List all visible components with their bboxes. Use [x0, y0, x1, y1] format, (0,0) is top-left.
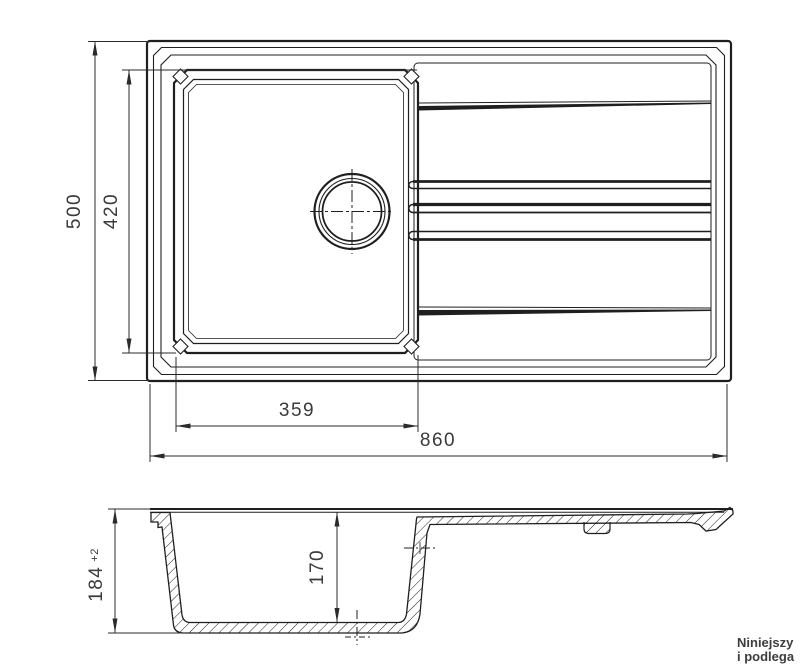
dim-height-label: 184+2: [86, 548, 107, 602]
drainboard-ridge: [409, 182, 711, 189]
drainboard-groove-bottom-line: [419, 307, 711, 308]
dim-bowl-depth-inner-label: 420: [101, 193, 122, 229]
sink-outer-edge-inner-line: [154, 48, 725, 375]
watermark-line1: Niniejszy: [737, 636, 794, 650]
watermark-line2: i podlega: [737, 650, 794, 664]
drainboard-texture: [409, 101, 711, 316]
top-view: [147, 41, 731, 381]
drainboard-groove-top-line: [419, 101, 711, 103]
drainboard-ridge: [409, 205, 711, 213]
section-material: [151, 508, 733, 634]
drain-hole: [310, 169, 394, 254]
dim-bowl-depth-section: 170: [307, 512, 337, 623]
drainboard-foot: [584, 522, 610, 534]
dim-total-depth-label: 500: [64, 193, 85, 229]
dim-bowl-depth-section-label: 170: [307, 549, 328, 585]
dim-height: 184+2: [86, 509, 208, 633]
sink-outer-edge: [147, 41, 731, 381]
drainboard-ridge: [409, 232, 711, 240]
dim-height-value: 184: [86, 566, 107, 602]
drainboard-groove-top: [419, 103, 711, 111]
dim-bowl-width-inner-label: 359: [279, 400, 315, 421]
drainboard-groove-bottom: [419, 310, 711, 316]
dim-total-width: 860: [150, 384, 727, 462]
sink-technical-drawing: 500 420 359 860: [0, 0, 800, 668]
dim-height-tolerance: +2: [89, 548, 101, 562]
bowl-inner-edge: [189, 85, 404, 339]
watermark-note: Niniejszy i podlega: [737, 636, 794, 664]
side-view-dimensions: 184+2 170: [86, 509, 337, 633]
dim-total-width-label: 860: [420, 430, 456, 451]
side-view: [150, 508, 733, 646]
